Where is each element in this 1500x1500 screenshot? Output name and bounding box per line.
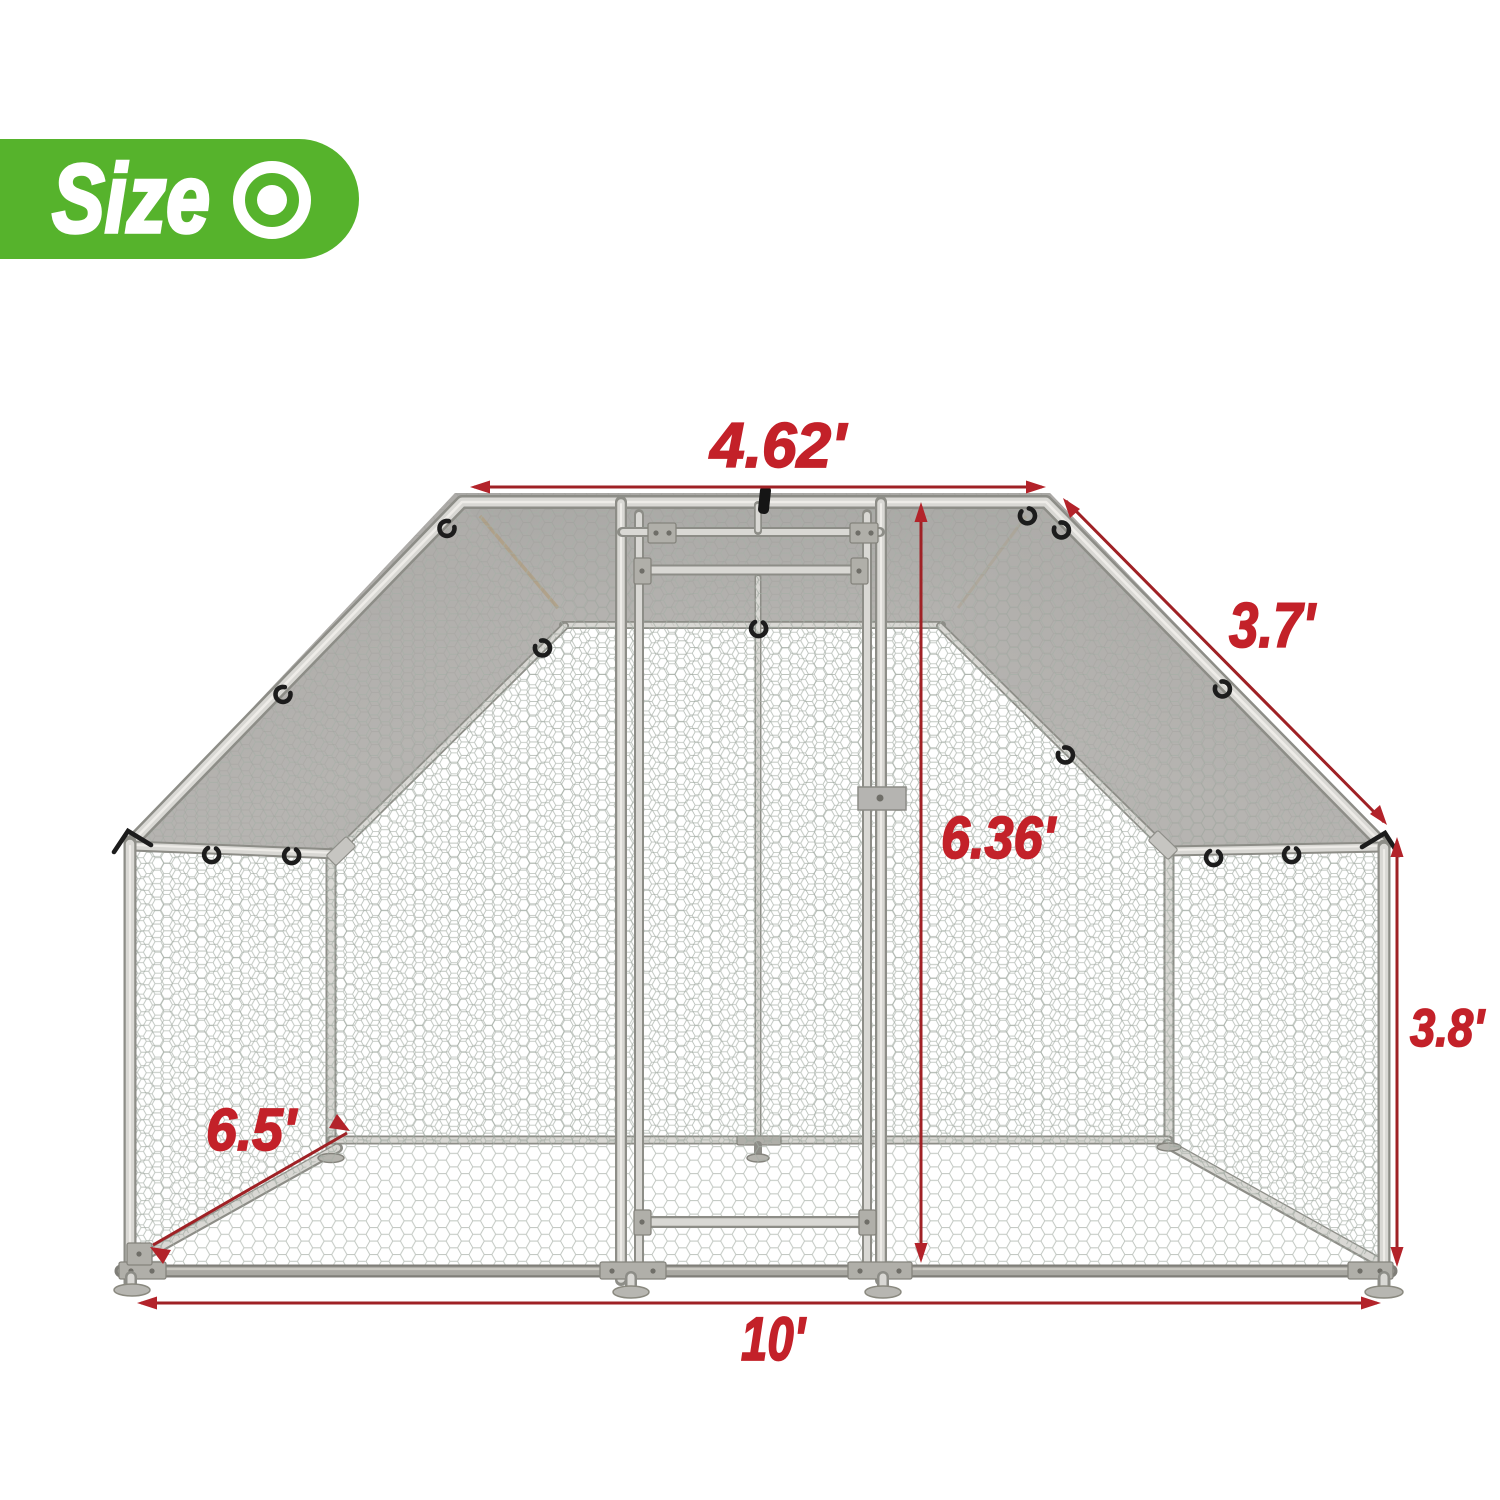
svg-text:6.5': 6.5': [206, 1097, 298, 1163]
svg-text:6.36': 6.36': [941, 805, 1057, 871]
svg-text:3.8': 3.8': [1410, 999, 1486, 1058]
svg-text:Size: Size: [52, 144, 210, 253]
svg-text:10': 10': [741, 1305, 807, 1373]
svg-text:4.62': 4.62': [708, 411, 848, 481]
svg-text:3.7': 3.7': [1229, 591, 1317, 661]
